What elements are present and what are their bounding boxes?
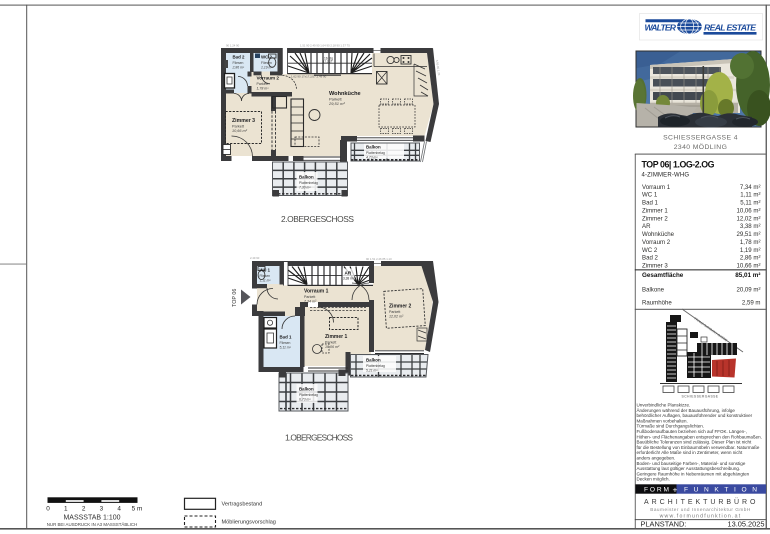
svg-text:WC 2: WC 2: [261, 55, 273, 60]
svg-text:TOP 06| 1.OG-2.OG: TOP 06| 1.OG-2.OG: [642, 160, 715, 170]
svg-text:+: +: [673, 484, 678, 494]
svg-text:5,11 m²: 5,11 m²: [280, 346, 292, 350]
svg-text:Plattenbelag: Plattenbelag: [366, 364, 385, 368]
svg-text:WC 1: WC 1: [642, 192, 658, 199]
svg-text:7,30 m²: 7,30 m²: [299, 186, 311, 190]
svg-text:7,34 m²: 7,34 m²: [304, 300, 317, 304]
svg-text:Fliesen: Fliesen: [261, 61, 272, 65]
svg-text:6,73 m²: 6,73 m²: [299, 398, 311, 402]
svg-text:90 1.24 90: 90 1.24 90: [226, 44, 240, 48]
svg-text:WC 2: WC 2: [642, 247, 658, 254]
svg-text:Balkone: Balkone: [642, 286, 665, 293]
svg-text:1.OBERGESCHOSS: 1.OBERGESCHOSS: [285, 433, 353, 443]
svg-text:Bauübliche Toleranzen sind zul: Bauübliche Toleranzen sind zulässig. Die…: [637, 440, 752, 445]
svg-text:Gesamtfläche: Gesamtfläche: [642, 272, 684, 279]
svg-text:Zimmer 1: Zimmer 1: [325, 334, 347, 340]
svg-text:13.05.2025: 13.05.2025: [728, 519, 765, 528]
svg-text:Parkett: Parkett: [257, 82, 268, 86]
svg-text:Ausstattung laut gültiger Auss: Ausstattung laut gültiger Ausstattungsbe…: [637, 466, 741, 471]
svg-text:Boden- und bauseitige Farben-,: Boden- und bauseitige Farben-, Material-…: [637, 461, 746, 466]
svg-text:2,86 m²: 2,86 m²: [232, 66, 245, 70]
svg-text:Zimmer 2: Zimmer 2: [642, 215, 668, 222]
svg-text:SCHIESSERGASSE: SCHIESSERGASSE: [682, 395, 719, 399]
svg-text:Balkon: Balkon: [299, 175, 314, 180]
svg-text:Plattenbelag: Plattenbelag: [366, 151, 385, 155]
svg-text:Vorraum 1: Vorraum 1: [642, 184, 671, 191]
svg-text:Geringere Raumhöhe in Nebenräu: Geringere Raumhöhe in Nebenräumen mit ab…: [637, 471, 750, 476]
svg-text:1,11 m²: 1,11 m²: [740, 192, 760, 199]
svg-text:4: 4: [117, 506, 121, 513]
svg-text:1,11 m²: 1,11 m²: [260, 279, 272, 283]
svg-text:Bad 1: Bad 1: [280, 335, 293, 340]
svg-text:5,11 m²: 5,11 m²: [740, 200, 760, 207]
svg-text:1,19 m²: 1,19 m²: [740, 247, 761, 254]
svg-text:5 m: 5 m: [132, 506, 143, 513]
svg-text:anders angegeben.: anders angegeben.: [637, 456, 676, 461]
svg-text:Bad 2: Bad 2: [642, 255, 659, 262]
svg-text:2.OBERGESCHOSS: 2.OBERGESCHOSS: [281, 214, 354, 224]
svg-text:1,19 m²: 1,19 m²: [261, 66, 273, 70]
svg-text:AR: AR: [345, 271, 352, 276]
svg-text:Parkett: Parkett: [304, 295, 315, 299]
svg-text:PLANSTAND:: PLANSTAND:: [641, 519, 687, 528]
svg-text:REAL ESTATE: REAL ESTATE: [704, 23, 756, 33]
svg-text:20,09 m²: 20,09 m²: [736, 286, 760, 293]
svg-text:Bad 2: Bad 2: [233, 55, 246, 60]
svg-text:Änderungen während der Bauausf: Änderungen während der Bauausführung, in…: [637, 407, 736, 413]
svg-text:1,78 m²: 1,78 m²: [740, 239, 761, 246]
svg-text:85,01 m²: 85,01 m²: [735, 272, 760, 279]
svg-text:für die Bestellung von Einbaum: für die Bestellung von Einbaumöbeln verw…: [637, 445, 760, 450]
svg-text:3,38 m²: 3,38 m²: [740, 223, 761, 230]
svg-text:Unverbindliche Planskizze.: Unverbindliche Planskizze.: [637, 403, 691, 408]
svg-text:Balkon: Balkon: [299, 387, 314, 392]
svg-text:Türmaße sind Durchgangslichten: Türmaße sind Durchgangslichten.: [637, 424, 705, 429]
svg-text:Zimmer 3: Zimmer 3: [232, 118, 255, 124]
svg-text:Zimmer 3: Zimmer 3: [642, 263, 668, 270]
svg-text:1.51 90 2.49 90 1.64 90: 1.51 90 2.49 90 1.64 90 2.18 90 1.37 75: [300, 44, 350, 48]
svg-text:Balkon: Balkon: [366, 145, 381, 150]
svg-text:29,51 m²: 29,51 m²: [328, 101, 345, 106]
svg-text:erforderlich! Alle Maße sind i: erforderlich! Alle Maße sind in Zentimet…: [637, 450, 744, 455]
svg-text:Raumhöhe: Raumhöhe: [642, 299, 672, 306]
svg-text:5,21 m²: 5,21 m²: [366, 369, 378, 373]
svg-text:12,02 m²: 12,02 m²: [389, 315, 404, 319]
svg-text:Fliesen: Fliesen: [233, 61, 244, 65]
svg-text:10,06 m²: 10,06 m²: [736, 207, 760, 214]
svg-text:Parkett: Parkett: [232, 125, 245, 129]
svg-text:Parkett: Parkett: [325, 341, 336, 345]
svg-text:3: 3: [100, 506, 104, 513]
svg-text:Baumeister und Innenarchitektu: Baumeister und Innenarchitektur GmbH: [650, 507, 751, 512]
svg-text:2,86 m²: 2,86 m²: [740, 255, 761, 262]
svg-text:WALTER: WALTER: [645, 23, 677, 33]
svg-text:Wohnküche: Wohnküche: [642, 231, 675, 238]
svg-text:Höhen- und Flächenangaben ents: Höhen- und Flächenangaben entsprechen de…: [637, 434, 762, 439]
svg-text:7,34 m²: 7,34 m²: [740, 184, 761, 191]
svg-text:WC 1: WC 1: [260, 268, 271, 273]
svg-text:Zimmer 2: Zimmer 2: [389, 304, 411, 310]
svg-text:Decken möglich.: Decken möglich.: [637, 477, 670, 482]
svg-text:10,66 m²: 10,66 m²: [736, 263, 760, 270]
svg-text:10,66 m²: 10,66 m²: [232, 129, 248, 133]
svg-text:TOP 06: TOP 06: [232, 289, 238, 307]
svg-text:SCHIESSERGASSE 4: SCHIESSERGASSE 4: [663, 135, 738, 142]
svg-text:MASSSTAB 1:100: MASSSTAB 1:100: [63, 515, 120, 522]
svg-text:17,2/27: 17,2/27: [323, 60, 333, 64]
svg-text:Vorraum 2: Vorraum 2: [642, 239, 671, 246]
svg-text:0: 0: [46, 506, 50, 513]
svg-text:Vorraum 2: Vorraum 2: [257, 76, 280, 81]
svg-text:Plattenbelag: Plattenbelag: [299, 181, 318, 185]
svg-text:ARCHITEKTURBÜRO: ARCHITEKTURBÜRO: [644, 498, 758, 506]
svg-text:2.49 90: 2.49 90: [250, 256, 260, 260]
svg-text:4-ZIMMER-WHG: 4-ZIMMER-WHG: [642, 173, 690, 179]
svg-text:2,59 m: 2,59 m: [742, 299, 761, 306]
svg-text:Fußbodenaufbauten beziehen sic: Fußbodenaufbauten beziehen sich auf FFOK…: [637, 429, 747, 434]
svg-text:Balkon: Balkon: [366, 358, 381, 363]
svg-text:1: 1: [64, 506, 68, 513]
svg-text:behördlicher Auflagen, bauausf: behördlicher Auflagen, bauausführender u…: [637, 413, 753, 418]
svg-text:Zimmer 1: Zimmer 1: [642, 207, 668, 214]
svg-text:3,38 m²: 3,38 m²: [343, 276, 354, 280]
svg-text:Vertragsbestand: Vertragsbestand: [222, 502, 263, 508]
svg-text:10,06 m²: 10,06 m²: [325, 345, 340, 349]
svg-text:FORM: FORM: [644, 487, 671, 494]
svg-text:NUR BEI AUSDRUCK IN A3 MASSSTÄ: NUR BEI AUSDRUCK IN A3 MASSSTÄBLICH: [47, 522, 138, 527]
svg-text:29,51 m²: 29,51 m²: [736, 231, 760, 238]
svg-text:Parkett: Parkett: [389, 310, 400, 314]
svg-text:Vorraum 1: Vorraum 1: [304, 289, 329, 295]
svg-text:4,73 m²: 4,73 m²: [366, 156, 378, 160]
svg-text:1,78 m²: 1,78 m²: [257, 87, 270, 91]
svg-text:2: 2: [82, 506, 86, 513]
svg-text:90 1.51 2.26 85 1.10: 90 1.51 2.26 85 1.10: [366, 257, 392, 261]
svg-text:Maßnahmen vorbehalten.: Maßnahmen vorbehalten.: [637, 418, 688, 423]
svg-text:AR: AR: [642, 223, 651, 230]
svg-text:Bad 1: Bad 1: [642, 200, 659, 207]
svg-text:12,02 m²: 12,02 m²: [736, 215, 760, 222]
svg-text:Möblierungsvorschlag: Möblierungsvorschlag: [222, 520, 276, 526]
svg-text:2340 MÖDLING: 2340 MÖDLING: [674, 143, 728, 151]
svg-text:Fliesen: Fliesen: [260, 274, 271, 278]
svg-text:Plattenbelag: Plattenbelag: [299, 393, 318, 397]
svg-text:Fliesen: Fliesen: [280, 341, 291, 345]
